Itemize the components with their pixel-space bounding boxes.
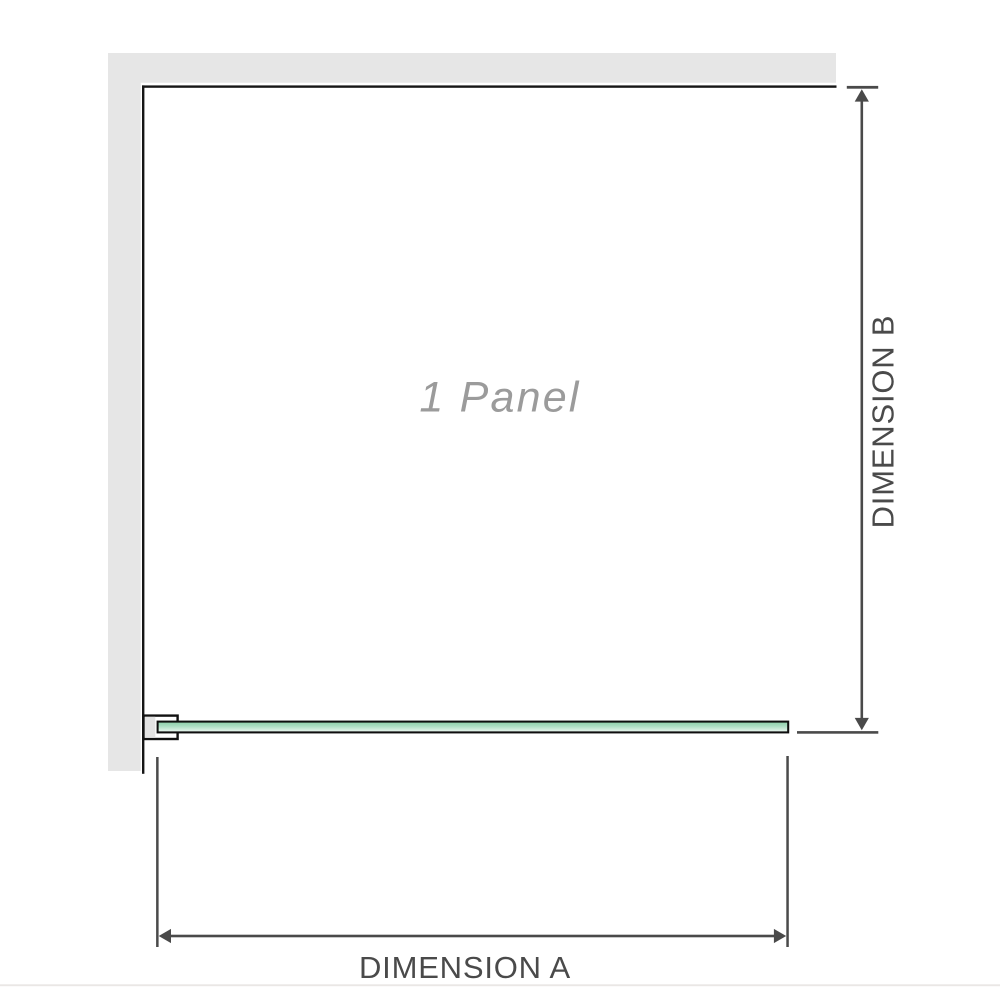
svg-text:DIMENSION A: DIMENSION A [359,950,571,985]
svg-text:1 Panel: 1 Panel [419,374,580,422]
svg-text:DIMENSION B: DIMENSION B [866,315,901,529]
